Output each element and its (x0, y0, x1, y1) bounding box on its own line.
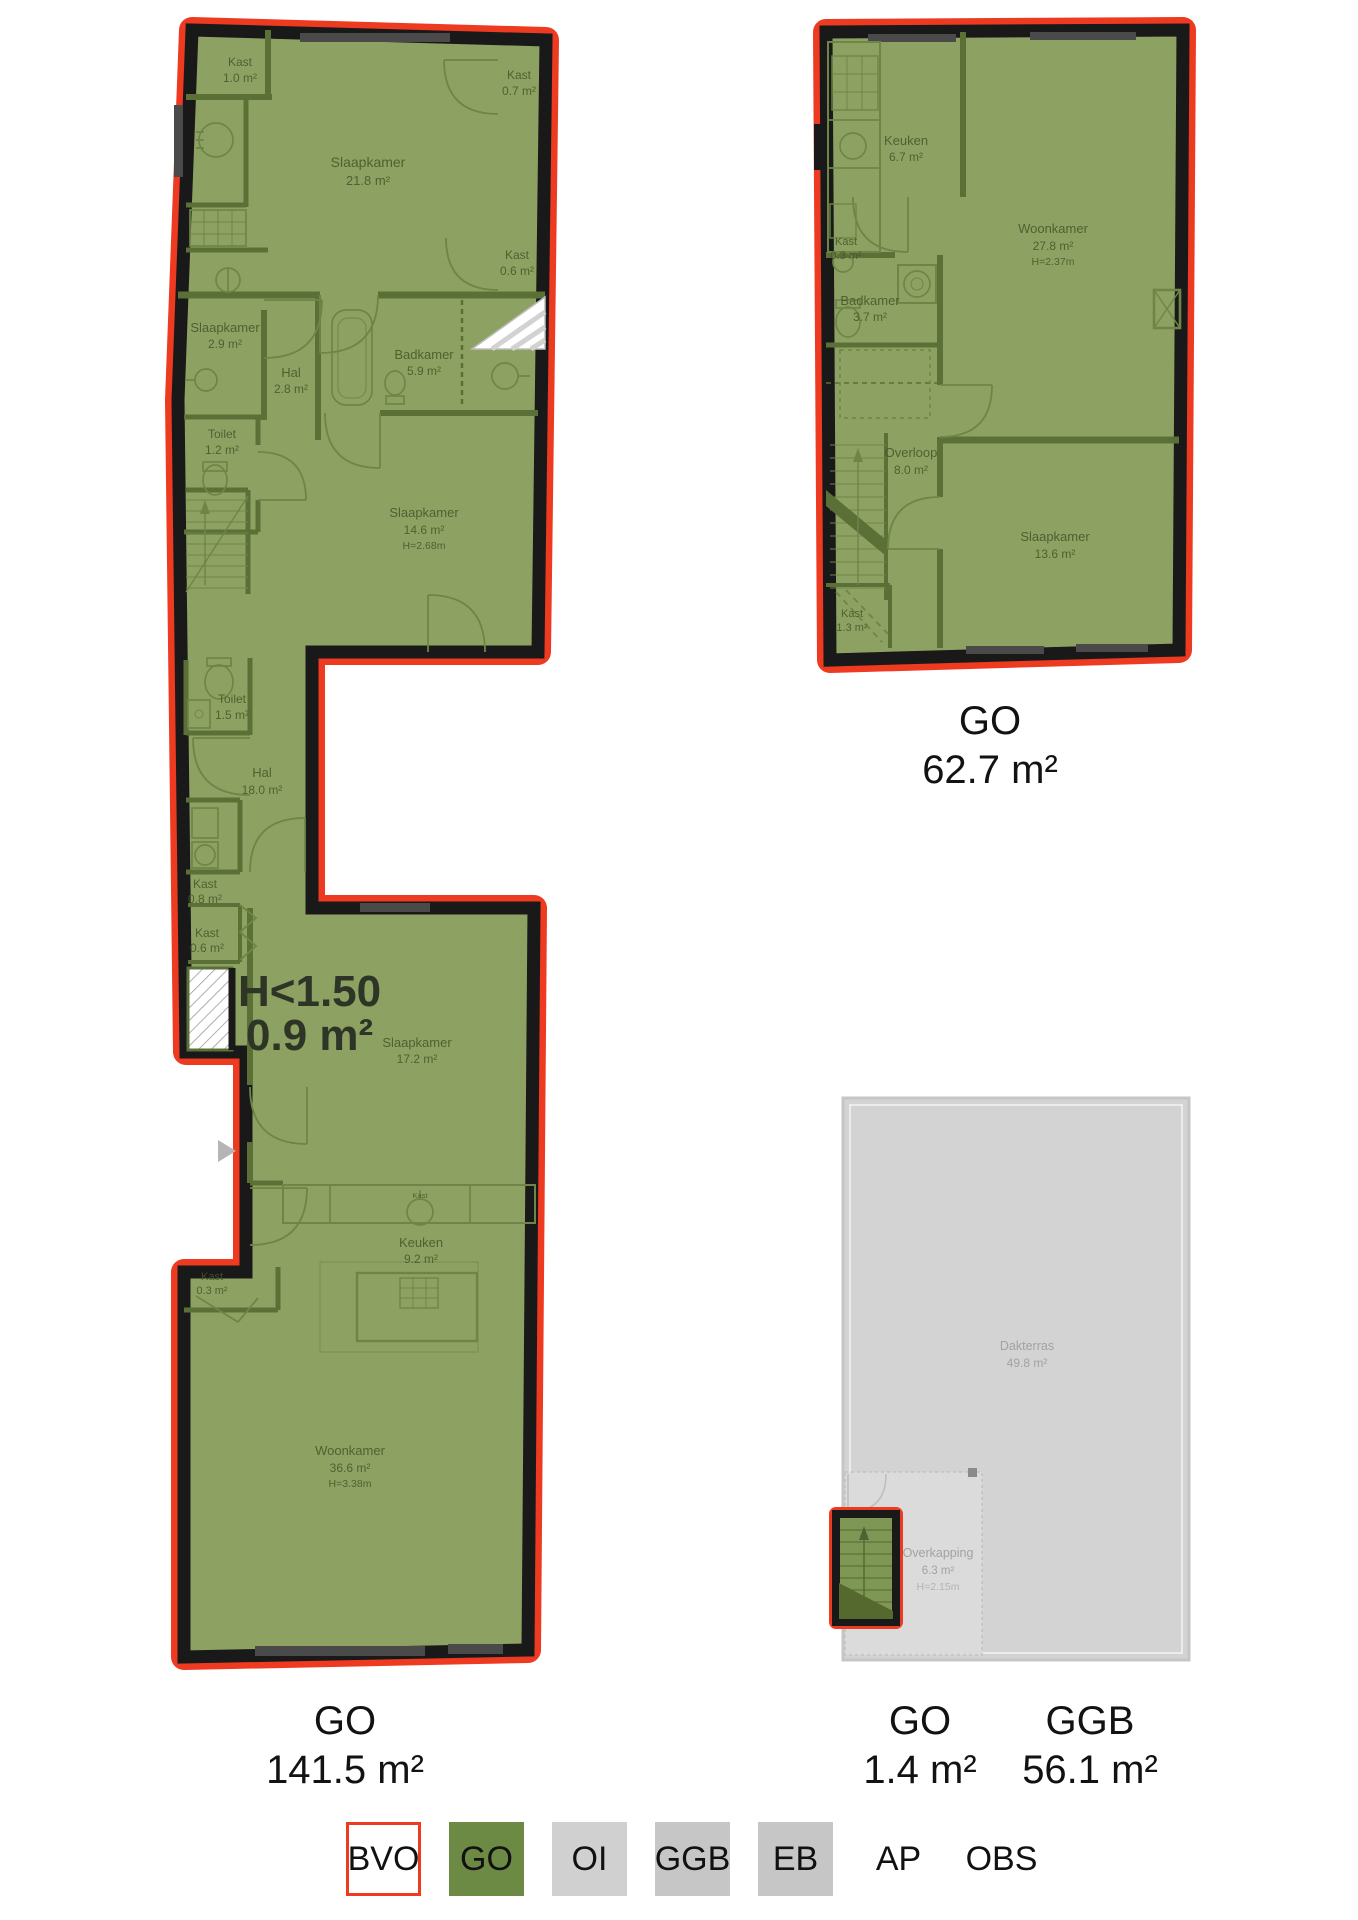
roof-go-stairs (836, 1514, 896, 1622)
room-label: Kast (841, 608, 863, 620)
room-area: 49.8 m² (1007, 1356, 1048, 1370)
room-area: 1.2 m² (205, 443, 239, 457)
room-label: Hal (281, 365, 301, 380)
area-code: GO (840, 697, 1140, 746)
area-value: 62.7 m² (840, 746, 1140, 795)
room-area: 9.2 m² (404, 1252, 438, 1266)
legend: BVO GO OI GGB EB AP OBS (346, 1822, 1039, 1896)
right-plan-area-label: GO 62.7 m² (840, 697, 1140, 795)
room-label: Kast (507, 68, 532, 82)
room-label: Badkamer (840, 293, 900, 308)
room-label: Overloop (885, 445, 938, 460)
room-label: Slaapkamer (382, 1035, 452, 1050)
room-area: 6.7 m² (889, 150, 923, 164)
room-height: H=2.68m (403, 540, 446, 552)
room-area: 0.7 m² (502, 84, 536, 98)
low-height-note-line1: H<1.50 (238, 967, 381, 1016)
legend-item-ap: AP (861, 1822, 936, 1896)
area-code: GGB (970, 1697, 1210, 1746)
room-area: 14.6 m² (404, 523, 445, 537)
legend-label: OI (572, 1840, 608, 1879)
legend-item-go: GO (449, 1822, 524, 1896)
room-area: 21.8 m² (346, 173, 391, 188)
roof-terrace-plan: Dakterras 49.8 m² Overkapping 6.3 m² H=2… (836, 1098, 1189, 1660)
meter-cabinet-marker (814, 124, 826, 170)
room-label: Woonkamer (1018, 221, 1089, 236)
room-label: Kast (505, 248, 530, 262)
legend-label: OBS (966, 1840, 1038, 1879)
room-label: Hal (252, 765, 272, 780)
room-area: 6.3 m² (922, 1565, 955, 1577)
room-area: 36.6 m² (330, 1461, 371, 1475)
low-height-note-line2: 0.9 m² (246, 1011, 373, 1060)
room-area: 1.0 m² (223, 71, 257, 85)
left-floor-plan: Kast 1.0 m² Slaapkamer 21.8 m² Kast 0.7 … (174, 30, 546, 1657)
room-area: 5.9 m² (407, 364, 441, 378)
room-label: Badkamer (394, 347, 454, 362)
room-label: Keuken (399, 1235, 443, 1250)
legend-item-bvo: BVO (346, 1822, 421, 1896)
room-area: 0.6 m² (190, 941, 224, 955)
room-label: Keuken (884, 133, 928, 148)
room-area: 27.8 m² (1033, 239, 1074, 253)
floorplan-report-page: Kast 1.0 m² Slaapkamer 21.8 m² Kast 0.7 … (0, 0, 1358, 1920)
room-area: 0.3 m² (196, 1285, 228, 1297)
area-code: GO (195, 1697, 495, 1746)
legend-label: GO (460, 1840, 513, 1879)
room-area: 0.8 m² (188, 892, 222, 906)
floor-plan-canvas: Kast 1.0 m² Slaapkamer 21.8 m² Kast 0.7 … (0, 0, 1358, 1920)
area-value: 141.5 m² (195, 1746, 495, 1795)
legend-item-ggb: GGB (655, 1822, 730, 1896)
room-area: 3.7 m² (853, 310, 887, 324)
room-label: Toilet (208, 427, 237, 441)
right-floor-plan: Keuken 6.7 m² Woonkamer 27.8 m² H=2.37m … (814, 30, 1183, 660)
roof-ggb-area-label: GGB 56.1 m² (970, 1697, 1210, 1795)
room-label: Overkapping (903, 1546, 974, 1560)
room-label: Kast (835, 236, 857, 248)
legend-label: EB (773, 1840, 818, 1879)
room-label: Kast (412, 1191, 428, 1200)
left-plan-area-label: GO 141.5 m² (195, 1697, 495, 1795)
room-area: 18.0 m² (242, 783, 283, 797)
legend-label: BVO (348, 1840, 420, 1879)
room-area: 0.6 m² (500, 264, 534, 278)
legend-item-eb: EB (758, 1822, 833, 1896)
room-label: Slaapkamer (190, 320, 260, 335)
area-value: 56.1 m² (970, 1746, 1210, 1795)
legend-item-obs: OBS (964, 1822, 1039, 1896)
room-label: Toilet (218, 692, 247, 706)
low-height-hatch (188, 968, 232, 1050)
room-height: H=3.38m (329, 1478, 372, 1490)
room-label: Dakterras (1000, 1339, 1054, 1353)
room-label: Kast (193, 877, 218, 891)
room-area: 1.5 m² (215, 708, 249, 722)
room-area: 2.9 m² (208, 337, 242, 351)
room-label: Kast (195, 926, 220, 940)
room-area: 0.3 m² (830, 250, 862, 262)
room-label: Kast (228, 55, 253, 69)
column-marker (968, 1468, 977, 1477)
room-label: Slaapkamer (1020, 529, 1090, 544)
legend-label: GGB (655, 1840, 731, 1879)
room-height: H=2.37m (1032, 256, 1075, 268)
legend-item-oi: OI (552, 1822, 627, 1896)
room-label: Slaapkamer (389, 505, 459, 520)
room-area: 17.2 m² (397, 1052, 438, 1066)
room-area: 13.6 m² (1035, 547, 1076, 561)
room-area: 2.8 m² (274, 382, 308, 396)
room-label: Slaapkamer (331, 154, 406, 170)
room-height: H=2.15m (917, 1581, 960, 1593)
room-area: 1.3 m² (836, 622, 868, 634)
room-label: Kast (201, 1271, 223, 1283)
room-area: 8.0 m² (894, 463, 928, 477)
room-label: Woonkamer (315, 1443, 386, 1458)
legend-label: AP (876, 1840, 921, 1879)
